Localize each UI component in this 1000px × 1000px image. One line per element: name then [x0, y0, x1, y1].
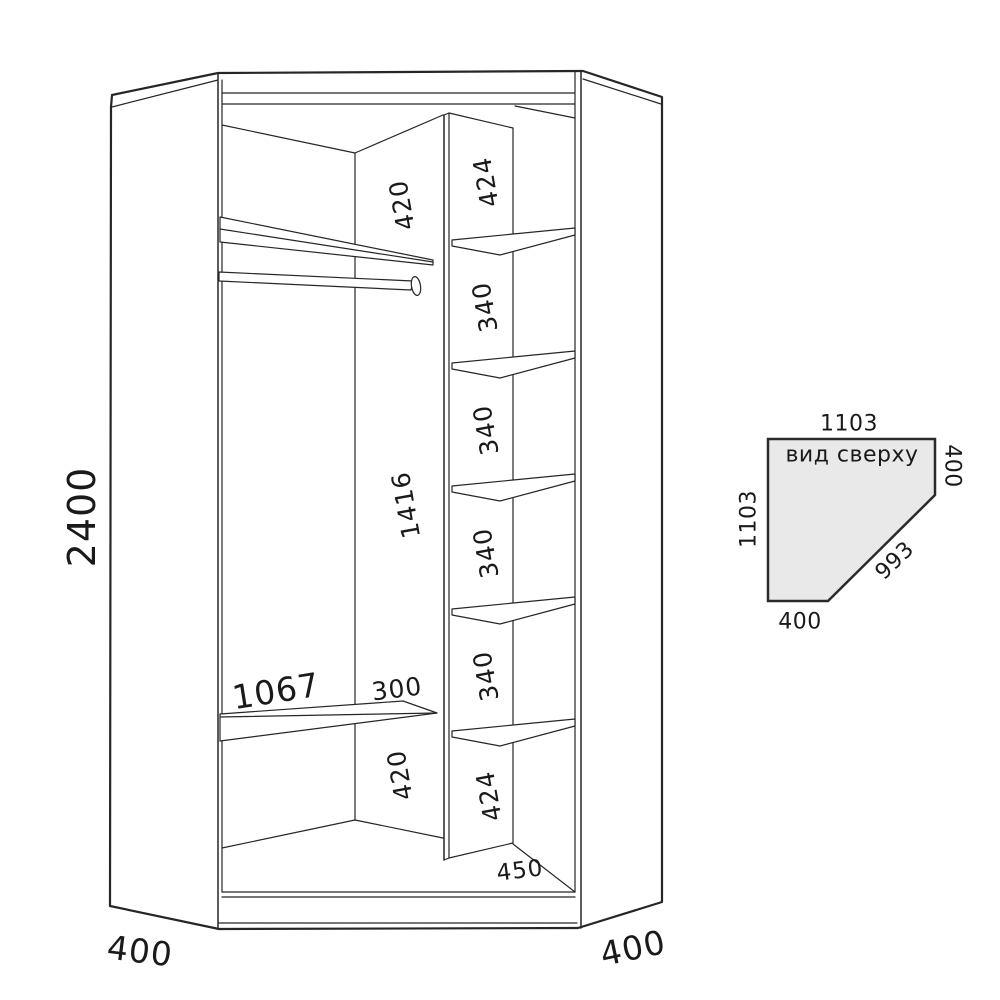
dim-column-top-section: 424	[467, 155, 504, 210]
divider-top-edge	[444, 113, 513, 128]
floor-back-right-edge	[355, 820, 443, 838]
dim-tv-top-width: 1103	[820, 412, 878, 437]
back-wall-top-right-edge	[515, 106, 575, 118]
front-view-dimensions: 2400 420 1416 1067 300 420 424 340 340 3…	[60, 155, 669, 975]
dim-hanging-middle-height: 1416	[386, 469, 426, 541]
drawing-svg: 2400 420 1416 1067 300 420 424 340 340 3…	[0, 0, 1000, 1000]
rod-bar	[219, 272, 413, 290]
dim-hanging-bottom-gap: 420	[381, 748, 418, 803]
dim-column-340-3: 340	[467, 526, 504, 581]
back-wall-top-left-edge	[222, 125, 355, 153]
divider-bottom-edge	[444, 843, 513, 860]
wardrobe-dimension-drawing: 2400 420 1416 1067 300 420 424 340 340 3…	[0, 0, 1000, 1000]
dim-gap-right: 300	[370, 672, 424, 707]
dim-hanging-top-gap: 420	[383, 178, 420, 233]
dim-tv-bottom-width: 400	[778, 610, 822, 635]
dim-tv-left-depth: 1103	[737, 490, 762, 548]
dim-column-340-2: 340	[467, 403, 504, 458]
dim-total-height: 2400	[60, 467, 104, 568]
dim-column-bottom-section: 424	[470, 769, 507, 824]
rod-end-cap	[410, 276, 422, 296]
dim-side-depth-right: 400	[597, 922, 670, 974]
wardrobe-front-view: 2400 420 1416 1067 300 420 424 340 340 3…	[60, 71, 669, 974]
back-wall-top-rising-edge	[355, 115, 443, 153]
floor-back-left-edge	[222, 820, 355, 848]
dim-column-340-4: 340	[467, 649, 504, 704]
wardrobe-top-view: вид сверху 1103 400 1103 993 400	[737, 412, 965, 635]
dim-tv-right-depth: 400	[940, 444, 965, 488]
top-view-title: вид сверху	[785, 443, 918, 468]
dim-column-width: 450	[495, 855, 545, 887]
hanging-rod	[219, 272, 422, 296]
dim-column-340-1: 340	[466, 280, 503, 335]
dim-side-depth-left: 400	[105, 928, 175, 975]
